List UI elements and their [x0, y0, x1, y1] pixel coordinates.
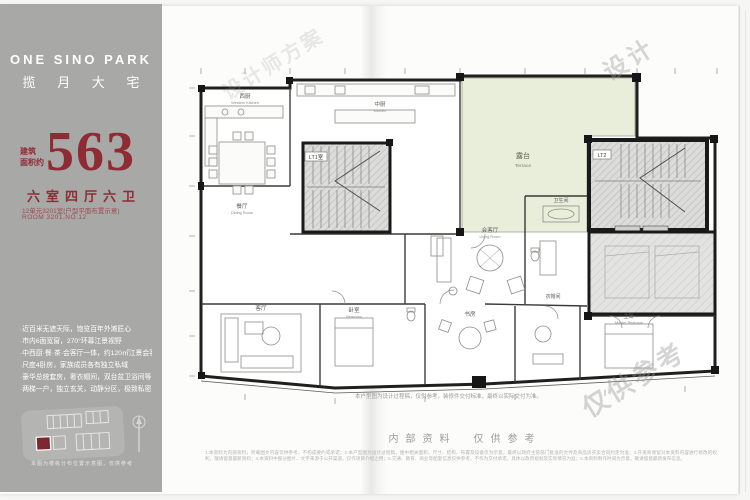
brochure-page: ONE SINO PARK 揽 月 大 宅 建筑面积约 563 六室四厅六卫 1…	[0, 0, 750, 500]
core-lt2-label: LT2	[598, 153, 607, 159]
left-brand-panel: ONE SINO PARK 揽 月 大 宅 建筑面积约 563 六室四厅六卫 1…	[0, 4, 162, 492]
svg-text:Master Bedroom: Master Bedroom	[615, 321, 643, 325]
svg-text:中厨: 中厨	[374, 100, 386, 108]
feature-item: ·市内6面宽窗，270°环幕江景视野	[20, 336, 152, 348]
svg-text:Bedroom: Bedroom	[346, 315, 361, 319]
floor-plan: 露台 Terrace	[185, 66, 725, 411]
site-plan-svg	[20, 404, 150, 464]
svg-text:书房: 书房	[464, 310, 476, 318]
area-block: 建筑面积约 563	[18, 126, 148, 188]
svg-text:主卧: 主卧	[623, 312, 635, 320]
svg-text:餐厅: 餐厅	[236, 202, 248, 210]
core-lt1-label: LT1室	[309, 153, 324, 161]
floor-plan-svg: 露台 Terrace	[185, 66, 725, 411]
feature-item: ·豪华总统套房，奢衣帽间，双台盆卫浴间等	[20, 372, 152, 384]
room-count-label: 六室四厅六卫	[0, 186, 162, 205]
feature-item: ·中西厨·餐·茶·会客厅一体，约120㎡江景会客厅	[20, 348, 152, 360]
svg-text:卧室: 卧室	[348, 306, 360, 314]
area-prefix-label: 建筑面积约	[20, 146, 44, 168]
area-value: 563	[46, 120, 136, 184]
neighbour-unit-shaded	[589, 232, 715, 314]
legal-disclaimer: 1.本资料为内部资料，所载图文内容仅供参考，不构成要约或承诺；2.本户型图为设计…	[205, 450, 717, 462]
unit-line-2: ROOM 3201,NO.12	[22, 214, 152, 221]
brand-name-cn: 揽 月 大 宅	[0, 72, 162, 91]
page-edge-line	[739, 6, 740, 494]
svg-text:客厅: 客厅	[255, 304, 267, 312]
feature-list: ·近百米无遮天际，饱览百年外滩匠心 ·市内6面宽窗，270°环幕江景视野 ·中西…	[20, 324, 152, 396]
svg-text:Kitchen: Kitchen	[374, 109, 387, 113]
site-plan-minimap	[20, 404, 150, 464]
core-lt1: LT1室	[303, 143, 390, 232]
svg-text:衣帽间: 衣帽间	[545, 293, 560, 300]
svg-text:Western Kitchen: Western Kitchen	[231, 101, 259, 105]
compass-icon	[133, 416, 145, 452]
site-plan-caption: 本图为楼栋分布位置示意图，仅供参考	[8, 460, 156, 467]
feature-item: ·近百米无遮天际，饱览百年外滩匠心	[20, 324, 152, 336]
feature-item: ·尺度4卧房，家族成员各有独立私域	[20, 360, 152, 372]
svg-text:卫生间: 卫生间	[553, 197, 568, 204]
brand-name-en: ONE SINO PARK	[0, 52, 162, 67]
terrace-label-cn: 露台	[516, 151, 530, 160]
svg-text:Dining Room: Dining Room	[231, 211, 253, 215]
plan-caption: 本户型图为设计过程稿，仅供参考，装修件交付标准，最终以实际交付为准。	[355, 392, 615, 400]
highlighted-building	[36, 437, 51, 451]
svg-text:Living Room: Living Room	[479, 235, 500, 239]
terrace-label-en: Terrace	[515, 163, 531, 169]
feature-item: ·两梯一户，独立玄关，动静分区，极致私密	[20, 384, 152, 396]
internal-notice: 内部资料 仅供参考	[300, 430, 630, 445]
svg-text:西厨: 西厨	[239, 93, 251, 100]
page-edge-line-2	[745, 10, 746, 492]
svg-text:会客厅: 会客厅	[482, 226, 499, 234]
